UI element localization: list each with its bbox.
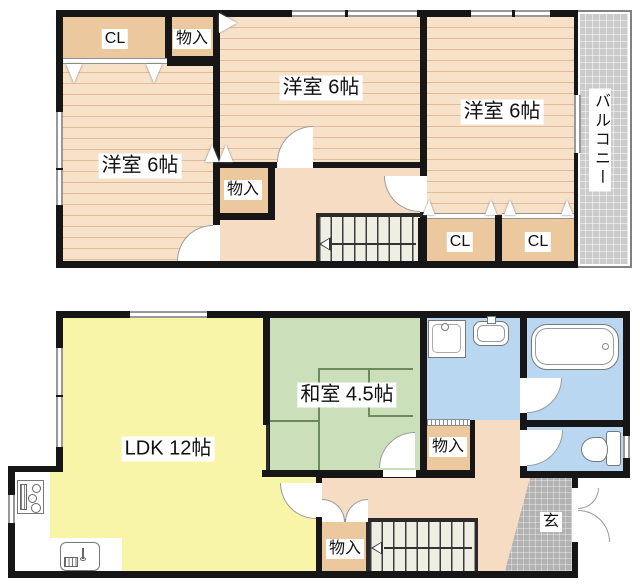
stairs-direction-line: [332, 243, 416, 245]
upper-stairs: [319, 217, 418, 261]
wall: [366, 522, 370, 571]
window: [56, 348, 63, 395]
wall: [475, 522, 478, 571]
closet-door-marker: [423, 200, 435, 215]
room-label-japanese-room: 和室 4.5帖: [297, 383, 396, 408]
door-opening: [277, 162, 313, 168]
wall: [316, 213, 422, 217]
window: [56, 397, 63, 447]
wall: [418, 218, 427, 261]
basin-inner: [477, 325, 505, 342]
wall: [366, 518, 478, 522]
room-label-closet-right-2: CL: [525, 232, 551, 252]
window: [292, 10, 345, 17]
room-label-western-center: 洋室 6帖: [280, 76, 363, 101]
stove-burner: [28, 494, 37, 503]
room-label-closet-right-1: CL: [447, 232, 473, 252]
washing-machine-pan-icon: [428, 320, 466, 358]
pan-drain: [441, 323, 449, 331]
door-opening: [520, 378, 527, 413]
wall: [268, 166, 275, 220]
closet-door-marker: [561, 200, 573, 215]
tatami-line: [270, 420, 318, 422]
door-opening: [520, 430, 527, 466]
closet-door-marker: [66, 64, 82, 83]
window: [515, 10, 550, 17]
window: [130, 311, 207, 318]
closet-door-marker: [504, 200, 516, 215]
toilet-tank: [606, 431, 621, 466]
tatami-line: [368, 415, 413, 417]
closet-door-marker: [146, 64, 162, 83]
room-label-western-left: 洋室 6帖: [99, 154, 182, 179]
room-label-storage-hall: 物入: [224, 180, 262, 200]
closet-door-marker: [485, 200, 497, 215]
wall: [495, 218, 502, 261]
bathtub-icon: [531, 324, 619, 370]
sink-faucet: [80, 557, 86, 561]
tatami-line: [318, 368, 413, 370]
door-opening: [383, 470, 416, 477]
room-label-storage-bottom: 物入: [326, 539, 364, 559]
window: [348, 10, 417, 17]
stove-grill: [20, 484, 27, 510]
entrance-door-arc: [578, 510, 610, 542]
room-label-ldk: LDK 12帖: [122, 437, 215, 462]
door-opening: [213, 225, 220, 261]
room-label-storage-washroom: 物入: [429, 437, 467, 457]
room-label-storage-top: 物入: [173, 29, 211, 49]
stove-icon: [17, 480, 44, 514]
window: [574, 95, 581, 153]
wall: [263, 311, 270, 425]
closet-door-marker: [205, 145, 219, 162]
folding-door: [427, 419, 470, 426]
stove-burner: [32, 484, 41, 493]
wall: [220, 213, 275, 220]
washbasin-icon: [473, 321, 509, 346]
sink-basin: [64, 557, 78, 567]
stairs-direction-line: [384, 547, 472, 549]
window: [8, 495, 15, 523]
window: [56, 112, 63, 168]
bathtub-drain: [602, 343, 609, 350]
floor-plan: CL 物入 洋室 6帖 洋室 6帖 洋室 6帖 物入 CL CL バルコニー: [0, 0, 640, 586]
closet-door-marker: [219, 13, 237, 33]
room-label-western-right: 洋室 6帖: [461, 100, 544, 125]
wall: [213, 162, 427, 168]
stairs-arrow-icon: [373, 543, 381, 553]
lower-corridor: [475, 420, 520, 478]
room-label-entrance: 玄: [540, 512, 562, 532]
room-label-balcony: バルコニー: [589, 89, 611, 192]
closet-door-marker: [219, 145, 233, 162]
stove-burner: [31, 503, 41, 513]
window: [471, 10, 512, 17]
stairs-arrow-icon: [321, 239, 329, 249]
window: [623, 436, 630, 458]
window: [56, 170, 63, 205]
room-label-closet-top-left: CL: [102, 29, 128, 49]
entrance-door-arc: [578, 488, 599, 509]
basin-faucet: [487, 316, 496, 324]
wall: [266, 425, 269, 470]
toilet-bowl: [581, 437, 608, 462]
kitchen-sink-icon: [60, 542, 100, 571]
